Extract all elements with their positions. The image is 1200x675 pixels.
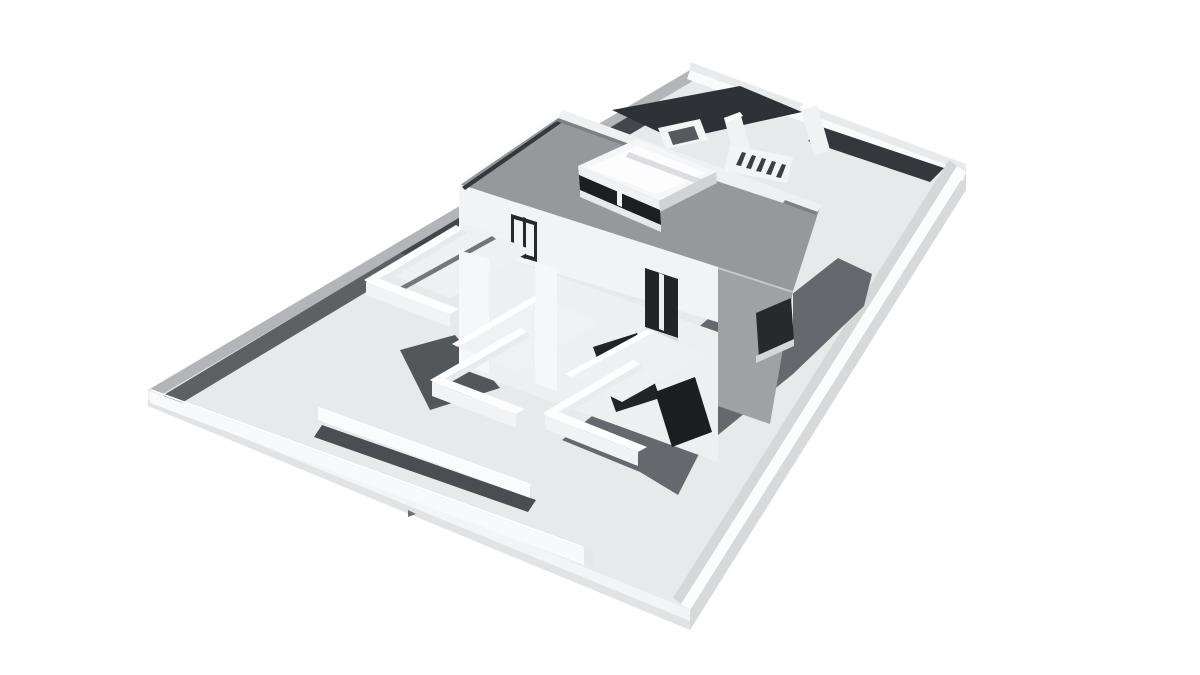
upper-window-mullion [659, 273, 664, 331]
architectural-render-canvas [0, 0, 1200, 675]
terrace2-blade-wall [535, 262, 557, 391]
roofbox-front-mullion [617, 188, 622, 207]
render-viewport [0, 0, 1200, 675]
